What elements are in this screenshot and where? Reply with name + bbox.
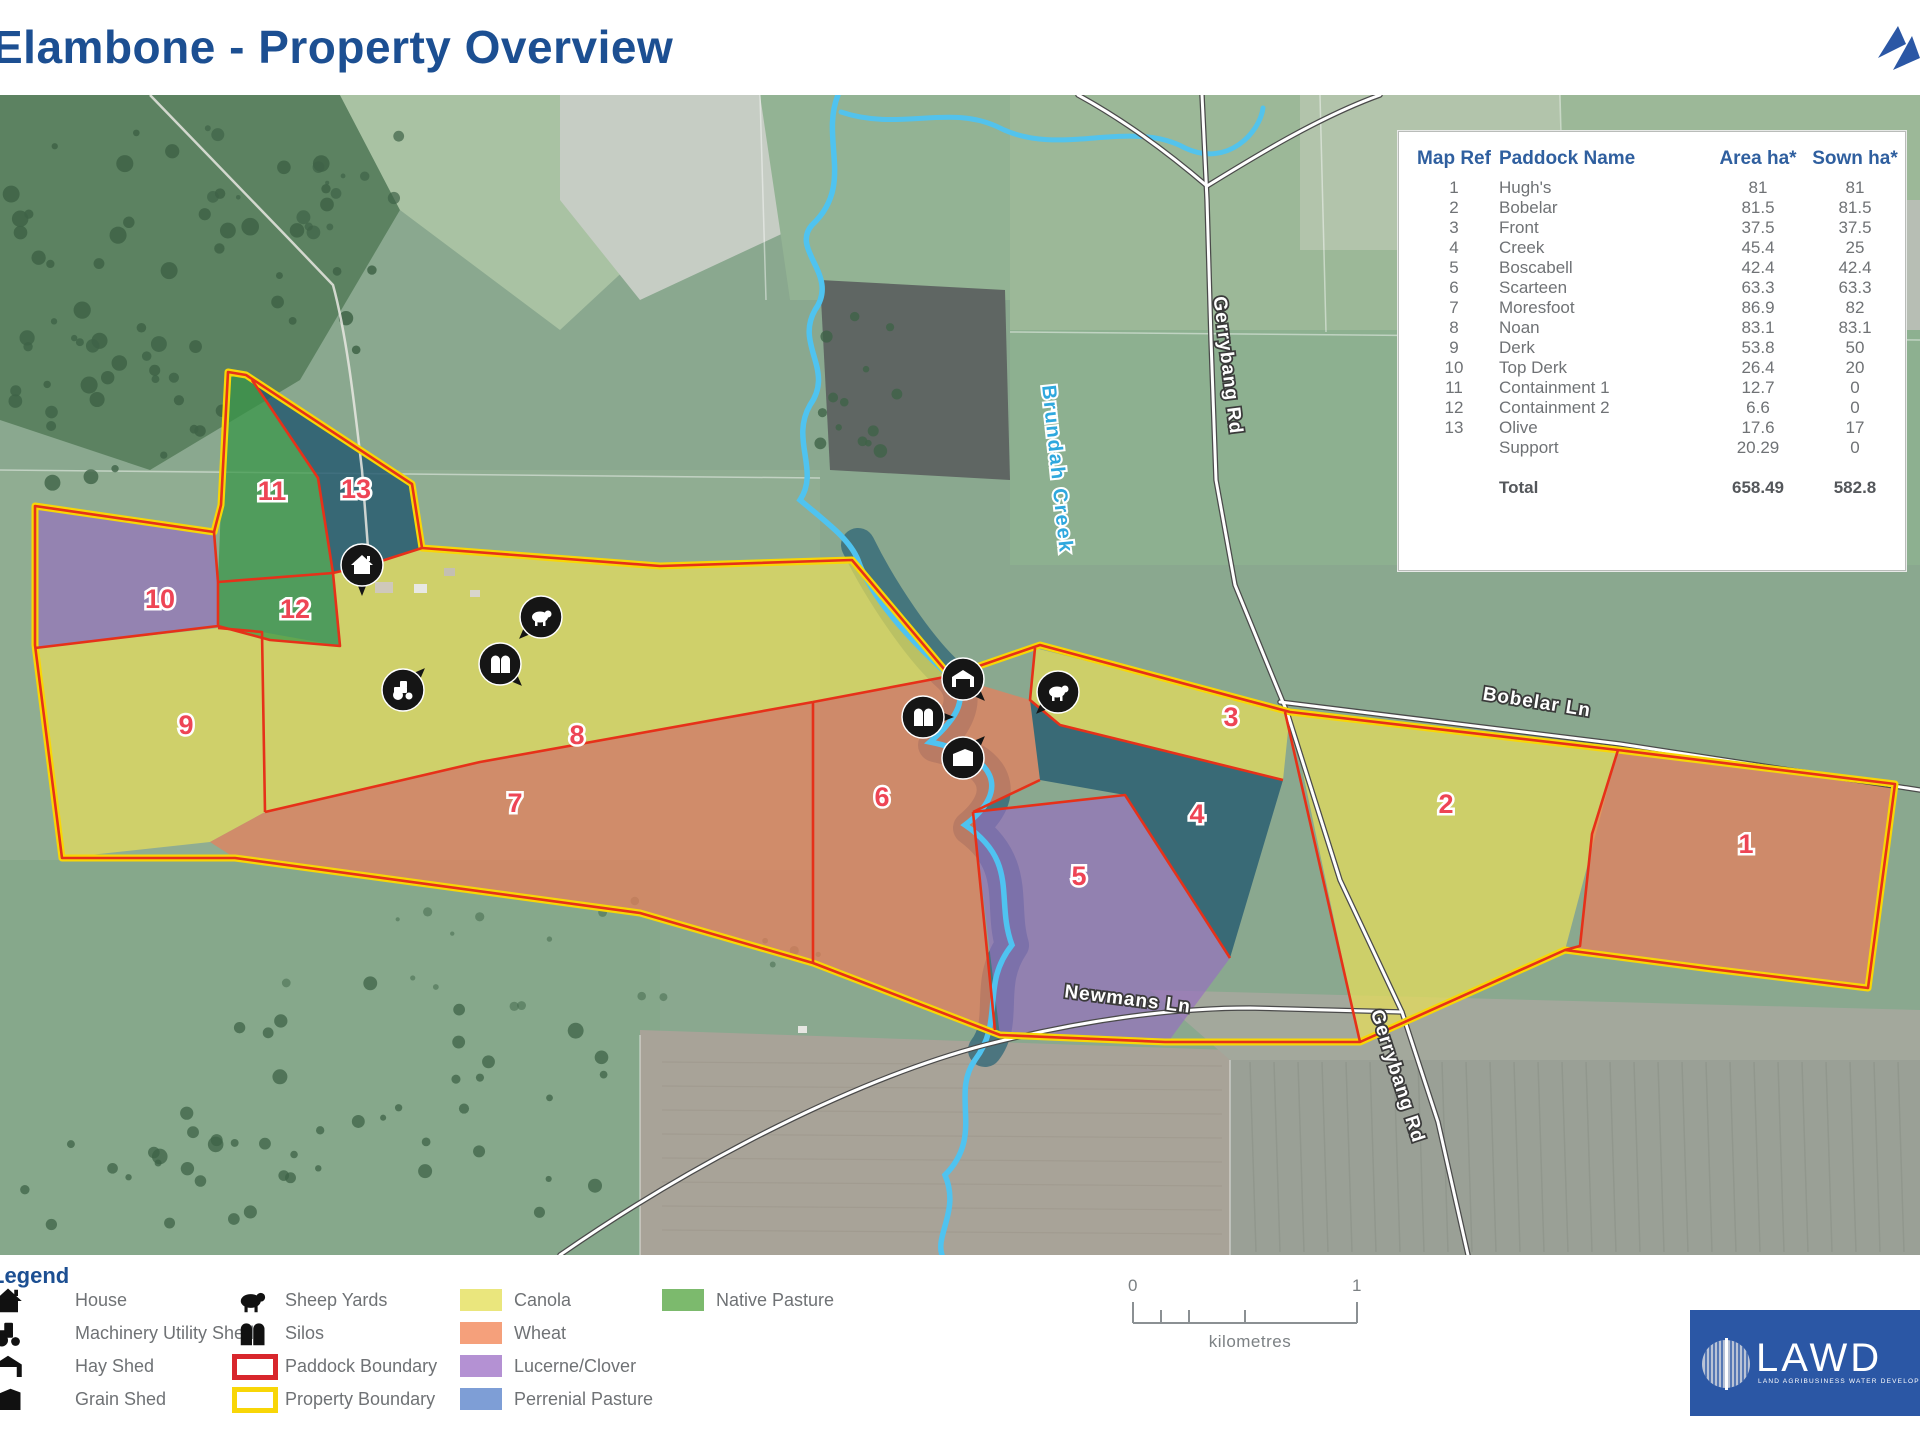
scale-bar: 0 1 kilometres bbox=[1100, 1270, 1400, 1360]
property-overview-page: 12345678910111213 Gerrybang RdGerrybang … bbox=[0, 0, 1920, 1440]
row-area-ha: 83.1 bbox=[1707, 318, 1809, 338]
row-area-ha: 81 bbox=[1707, 178, 1809, 198]
row-sown-ha: 81 bbox=[1809, 178, 1901, 198]
legend-machinery-label: Machinery Utility Shed bbox=[75, 1323, 254, 1344]
total-label: Total bbox=[1495, 478, 1707, 498]
legend-crop-swatch bbox=[460, 1388, 502, 1410]
row-map-ref: 3 bbox=[1413, 218, 1495, 238]
row-map-ref: 5 bbox=[1413, 258, 1495, 278]
row-map-ref: 6 bbox=[1413, 278, 1495, 298]
table-header-name: Paddock Name bbox=[1495, 148, 1707, 178]
row-area-ha: 17.6 bbox=[1707, 418, 1809, 438]
row-area-ha: 6.6 bbox=[1707, 398, 1809, 418]
legend-item-label: Paddock Boundary bbox=[285, 1356, 437, 1377]
row-sown-ha: 82 bbox=[1809, 298, 1901, 318]
row-sown-ha: 42.4 bbox=[1809, 258, 1901, 278]
row-sown-ha: 83.1 bbox=[1809, 318, 1901, 338]
lawd-wordmark: LAWD bbox=[1756, 1336, 1882, 1381]
row-sown-ha: 81.5 bbox=[1809, 198, 1901, 218]
legend-crop-swatch bbox=[460, 1355, 502, 1377]
table-header-sown: Sown ha* bbox=[1809, 148, 1901, 178]
row-paddock-name: Bobelar bbox=[1495, 198, 1707, 218]
row-map-ref: 4 bbox=[1413, 238, 1495, 258]
paddock-label-9: 9 bbox=[178, 710, 193, 740]
paddock-label-11: 11 bbox=[258, 476, 287, 506]
legend-pasture-swatch bbox=[662, 1289, 704, 1311]
row-paddock-name: Containment 2 bbox=[1495, 398, 1707, 418]
legend-pasture-label: Native Pasture bbox=[716, 1290, 834, 1311]
paddock-label-8: 8 bbox=[569, 720, 584, 750]
legend-hay-label: Hay Shed bbox=[75, 1356, 154, 1377]
legend-crop-label: Canola bbox=[514, 1290, 571, 1311]
legend-crop-label: Perrenial Pasture bbox=[514, 1389, 653, 1410]
paddock-label-7: 7 bbox=[507, 788, 522, 818]
legend-item-label: Silos bbox=[285, 1323, 324, 1344]
row-map-ref: 8 bbox=[1413, 318, 1495, 338]
row-map-ref: 7 bbox=[1413, 298, 1495, 318]
row-area-ha: 53.8 bbox=[1707, 338, 1809, 358]
table-header-ref: Map Ref bbox=[1413, 148, 1495, 178]
row-paddock-name: Moresfoot bbox=[1495, 298, 1707, 318]
row-paddock-name: Top Derk bbox=[1495, 358, 1707, 378]
paddock-label-6: 6 bbox=[874, 782, 889, 812]
legend-grain-label: Grain Shed bbox=[75, 1389, 166, 1410]
row-paddock-name: Containment 1 bbox=[1495, 378, 1707, 398]
paddock-table: Map RefPaddock NameArea ha*Sown ha* 1Hug… bbox=[1398, 131, 1906, 571]
lawd-tagline: LAND AGRIBUSINESS WATER DEVELOPMENT bbox=[1758, 1378, 1920, 1385]
legend-boundary-swatch bbox=[232, 1387, 278, 1413]
row-map-ref: 1 bbox=[1413, 178, 1495, 198]
paddock-label-13: 13 bbox=[341, 474, 371, 504]
row-sown-ha: 37.5 bbox=[1809, 218, 1901, 238]
legend-boundary-swatch bbox=[232, 1354, 278, 1380]
row-paddock-name: Support bbox=[1495, 438, 1707, 458]
legend-silos-icon bbox=[235, 1319, 269, 1349]
total-sown: 582.8 bbox=[1809, 478, 1901, 498]
legend-house-icon bbox=[0, 1286, 25, 1316]
row-area-ha: 20.29 bbox=[1707, 438, 1809, 458]
paddock-label-4: 4 bbox=[1189, 799, 1204, 829]
legend-item-label: Property Boundary bbox=[285, 1389, 435, 1410]
legend-item-label: Sheep Yards bbox=[285, 1290, 387, 1311]
row-area-ha: 81.5 bbox=[1707, 198, 1809, 218]
row-sown-ha: 0 bbox=[1809, 378, 1901, 398]
scale-unit-label: kilometres bbox=[1100, 1332, 1400, 1352]
row-sown-ha: 17 bbox=[1809, 418, 1901, 438]
table-header-area: Area ha* bbox=[1707, 148, 1809, 178]
legend-crop-label: Wheat bbox=[514, 1323, 566, 1344]
row-map-ref: 2 bbox=[1413, 198, 1495, 218]
legend: Legend HouseMachinery Utility ShedHay Sh… bbox=[0, 1255, 1920, 1440]
legend-crop-label: Lucerne/Clover bbox=[514, 1356, 636, 1377]
row-paddock-name: Boscabell bbox=[1495, 258, 1707, 278]
legend-crop-swatch bbox=[460, 1322, 502, 1344]
row-sown-ha: 50 bbox=[1809, 338, 1901, 358]
row-paddock-name: Derk bbox=[1495, 338, 1707, 358]
row-sown-ha: 0 bbox=[1809, 398, 1901, 418]
page-title: Elambone - Property Overview bbox=[0, 20, 673, 74]
legend-crop-swatch bbox=[460, 1289, 502, 1311]
paddock-table-header: Map RefPaddock NameArea ha*Sown ha* bbox=[1413, 148, 1895, 178]
row-paddock-name: Front bbox=[1495, 218, 1707, 238]
row-sown-ha: 25 bbox=[1809, 238, 1901, 258]
row-area-ha: 37.5 bbox=[1707, 218, 1809, 238]
row-sown-ha: 63.3 bbox=[1809, 278, 1901, 298]
row-paddock-name: Olive bbox=[1495, 418, 1707, 438]
row-map-ref: 11 bbox=[1413, 378, 1495, 398]
row-sown-ha: 20 bbox=[1809, 358, 1901, 378]
row-paddock-name: Scarteen bbox=[1495, 278, 1707, 298]
row-paddock-name: Creek bbox=[1495, 238, 1707, 258]
row-paddock-name: Noan bbox=[1495, 318, 1707, 338]
legend-machinery-icon bbox=[0, 1319, 25, 1349]
row-area-ha: 26.4 bbox=[1707, 358, 1809, 378]
lawd-logo: LAWD LAND AGRIBUSINESS WATER DEVELOPMENT bbox=[1690, 1310, 1920, 1416]
row-area-ha: 45.4 bbox=[1707, 238, 1809, 258]
paddock-table-body: 1Hugh's81812Bobelar81.581.53Front37.537.… bbox=[1413, 178, 1895, 458]
row-sown-ha: 0 bbox=[1809, 438, 1901, 458]
row-map-ref: 13 bbox=[1413, 418, 1495, 438]
paddock-label-1: 1 bbox=[1738, 829, 1753, 859]
row-area-ha: 63.3 bbox=[1707, 278, 1809, 298]
row-paddock-name: Hugh's bbox=[1495, 178, 1707, 198]
total-blank bbox=[1413, 478, 1495, 498]
row-map-ref: 12 bbox=[1413, 398, 1495, 418]
row-map-ref bbox=[1413, 438, 1495, 458]
row-area-ha: 42.4 bbox=[1707, 258, 1809, 278]
total-area: 658.49 bbox=[1707, 478, 1809, 498]
paddock-label-12: 12 bbox=[280, 594, 310, 624]
legend-hay-icon bbox=[0, 1352, 25, 1382]
legend-sheep-icon bbox=[235, 1286, 269, 1316]
legend-house-label: House bbox=[75, 1290, 127, 1311]
paddock-label-5: 5 bbox=[1071, 861, 1086, 891]
paddock-label-10: 10 bbox=[145, 584, 175, 614]
lawd-corner-logo-icon bbox=[1870, 18, 1920, 82]
row-area-ha: 12.7 bbox=[1707, 378, 1809, 398]
row-map-ref: 9 bbox=[1413, 338, 1495, 358]
legend-grain-icon bbox=[0, 1385, 25, 1415]
row-map-ref: 10 bbox=[1413, 358, 1495, 378]
paddock-label-2: 2 bbox=[1438, 789, 1453, 819]
row-area-ha: 86.9 bbox=[1707, 298, 1809, 318]
paddock-label-3: 3 bbox=[1223, 702, 1238, 732]
lawd-globe-icon bbox=[1698, 1336, 1754, 1392]
paddock-table-total-row: Total658.49582.8 bbox=[1413, 478, 1895, 498]
